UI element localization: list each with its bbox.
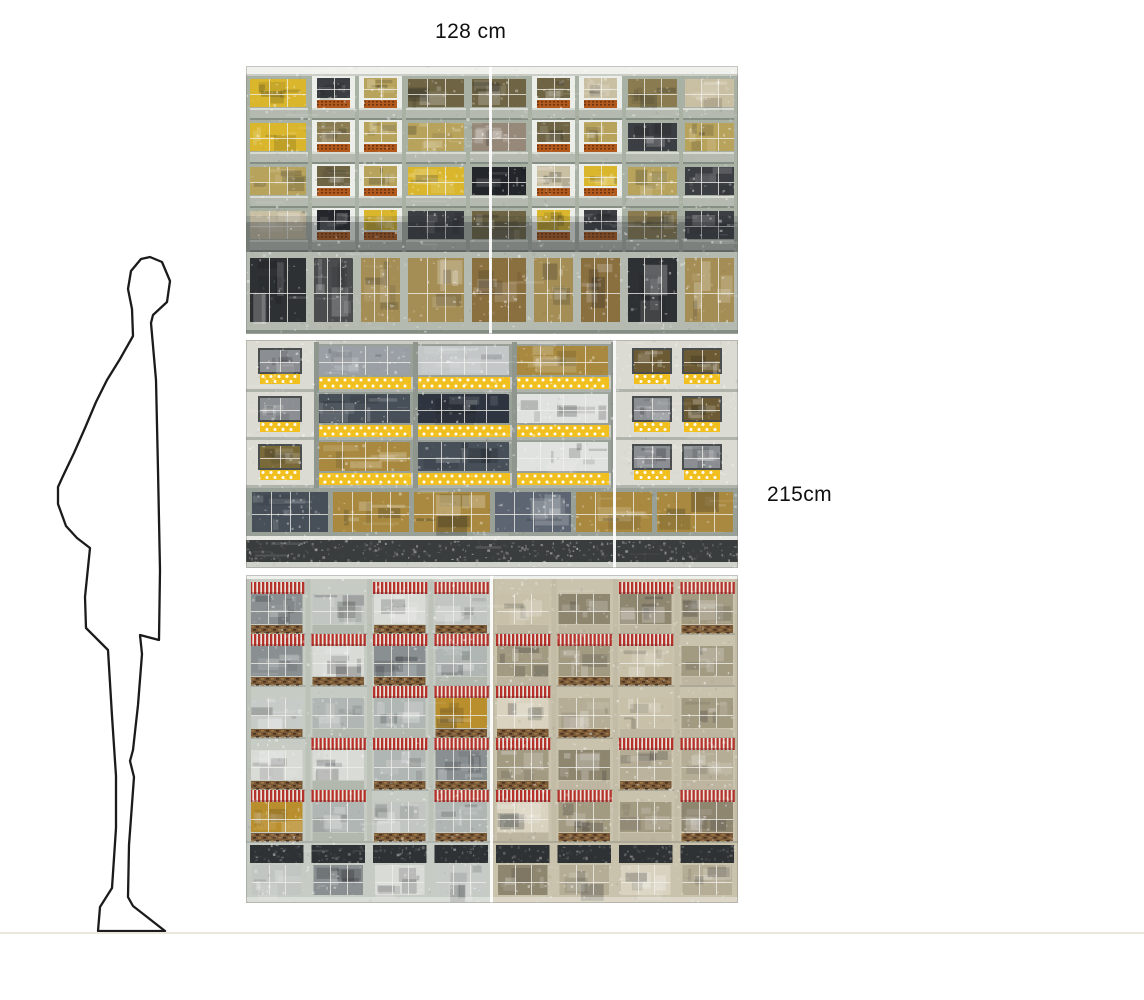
artwork-panel-middle (246, 340, 738, 568)
artwork-panel-top (246, 66, 738, 334)
height-dimension-label: 215cm (767, 483, 832, 507)
artwork-triptych (246, 66, 738, 903)
artwork-panel-bottom (246, 575, 738, 903)
human-silhouette-outline (58, 257, 170, 931)
floor-line (0, 932, 1144, 934)
width-dimension-label: 128 cm (435, 20, 506, 44)
